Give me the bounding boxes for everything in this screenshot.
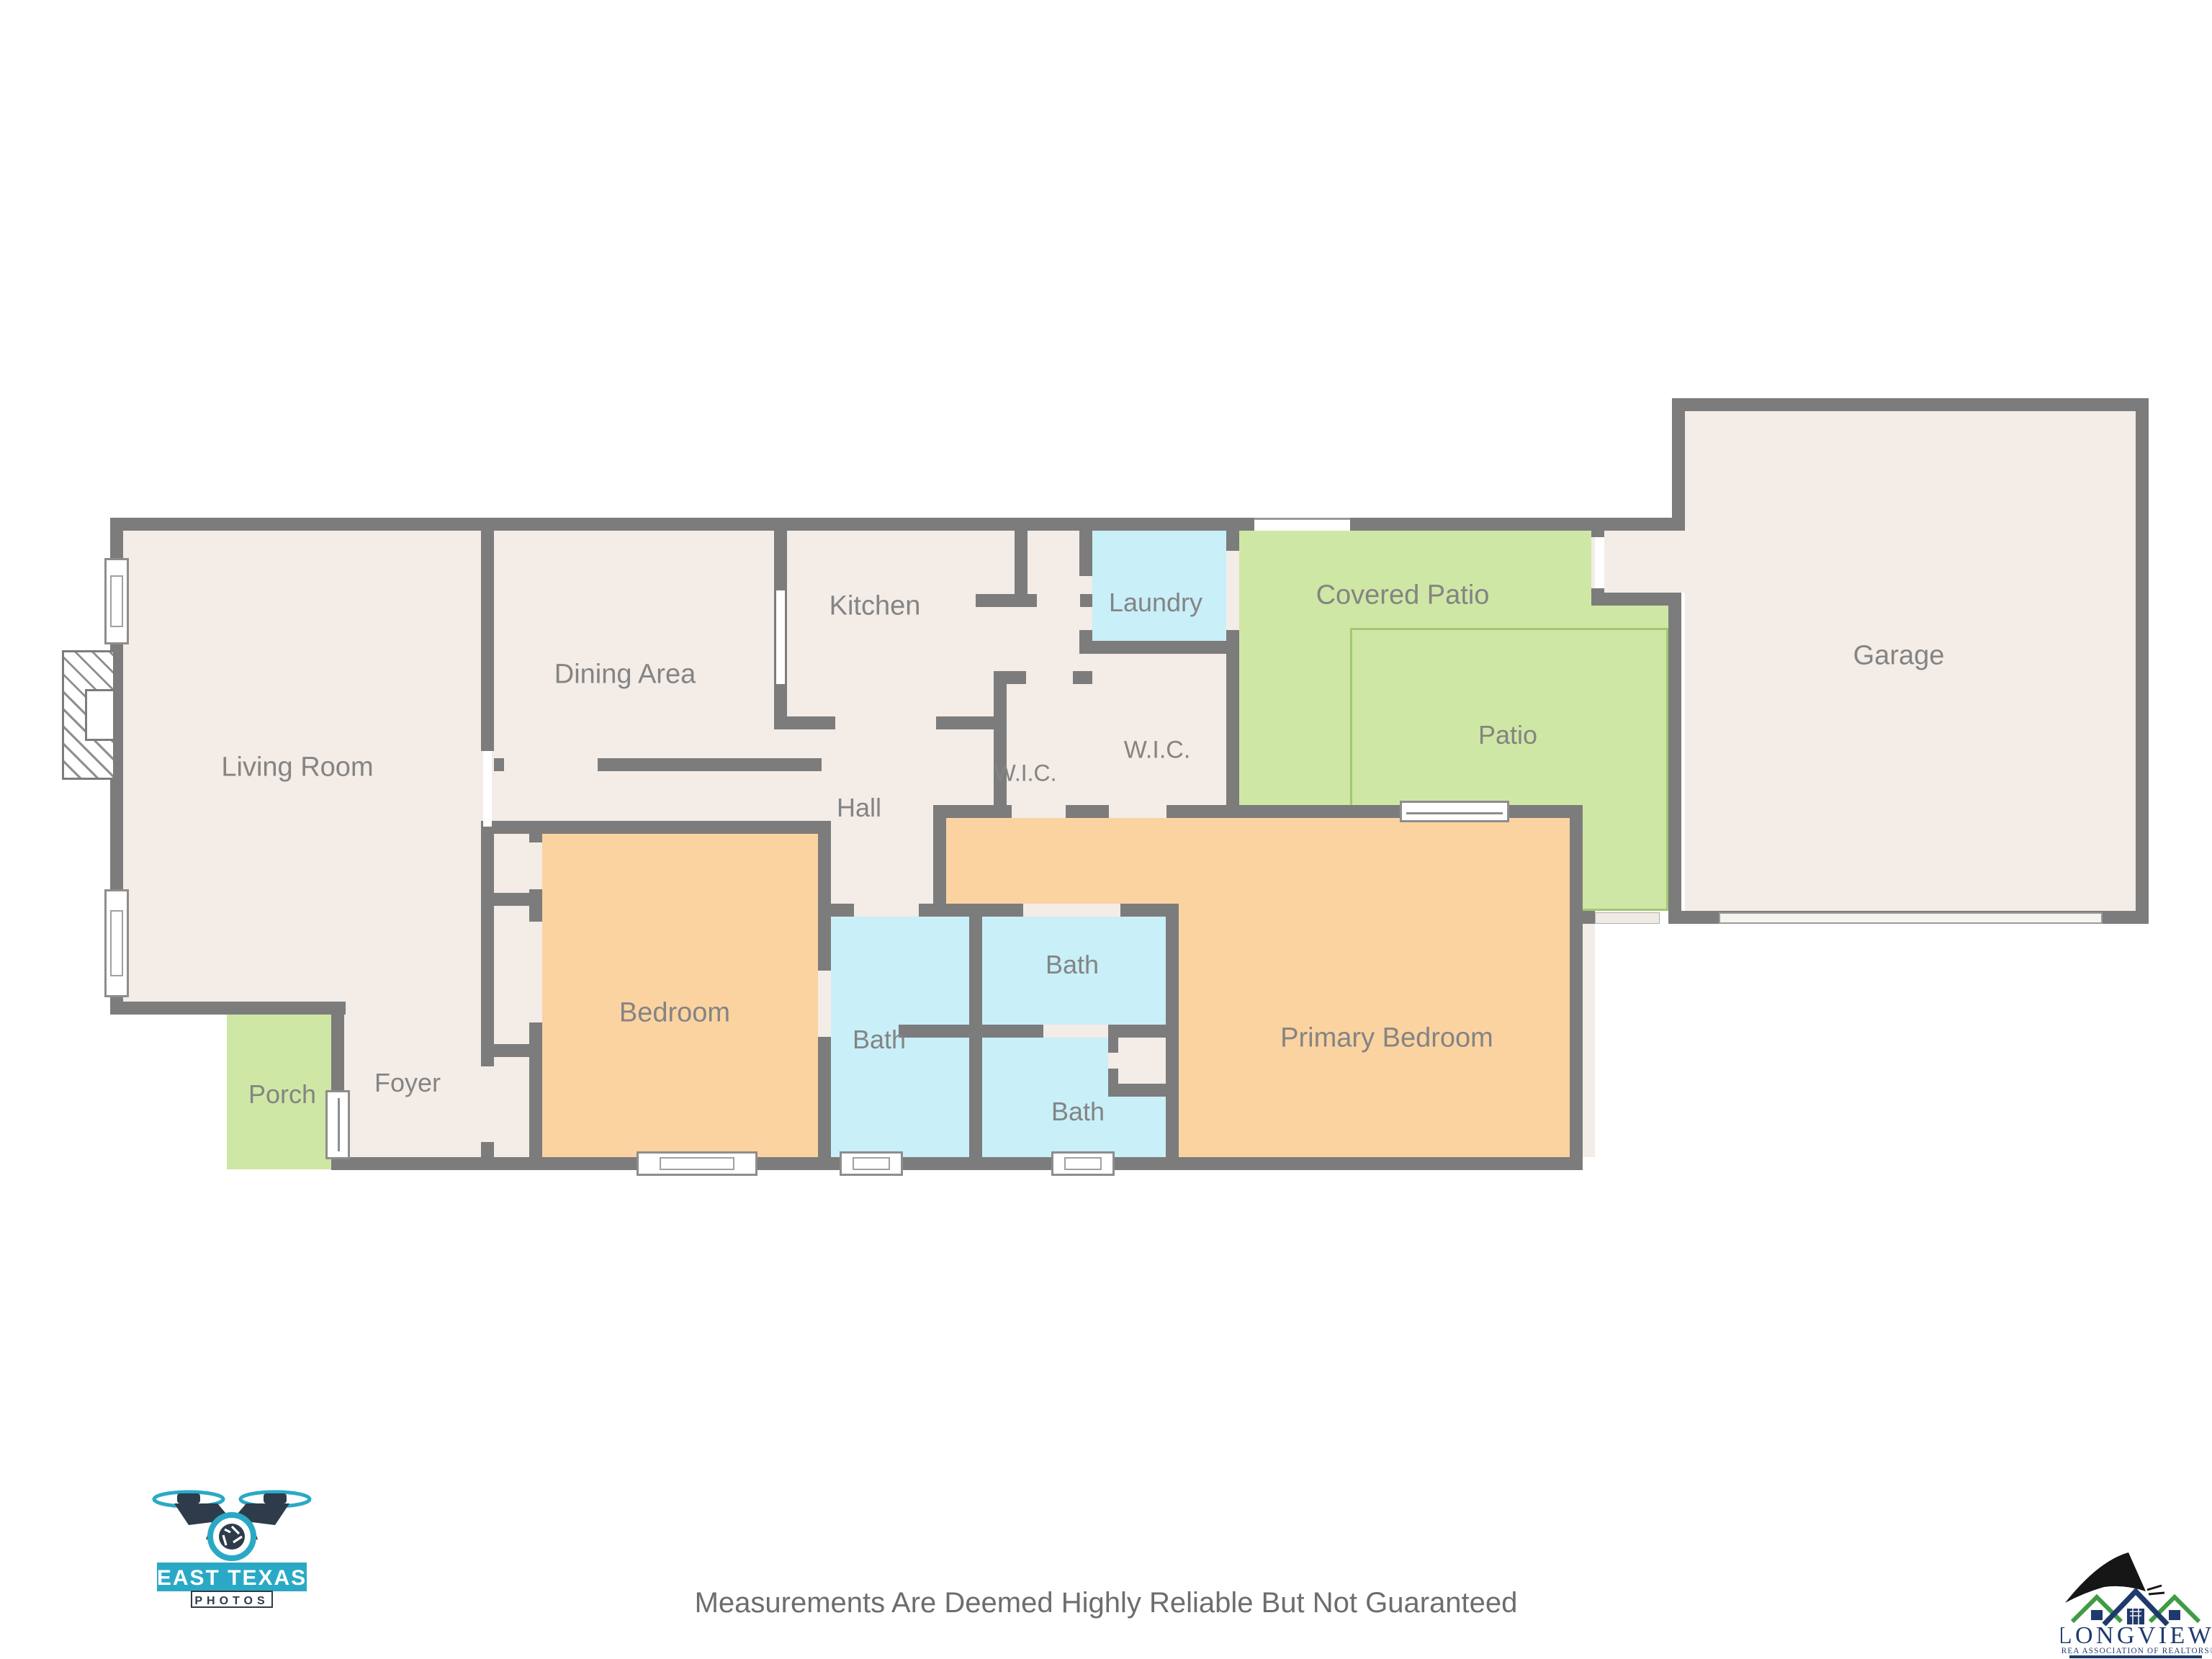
- window: [840, 1151, 903, 1176]
- wall: [1108, 1069, 1118, 1084]
- wall: [529, 889, 542, 922]
- wall: [976, 594, 1037, 607]
- laundry-floor: [1092, 531, 1226, 641]
- association-logo-graphic: LONGVIEW AREA ASSOCIATION OF REALTORS®: [2061, 1547, 2212, 1659]
- room-label-hall: Hall: [837, 793, 881, 823]
- wall: [818, 904, 854, 917]
- wall: [1226, 531, 1239, 551]
- wall: [1073, 671, 1092, 684]
- room-label-primary-bedroom: Primary Bedroom: [1280, 1023, 1493, 1054]
- room-label-foyer: Foyer: [374, 1068, 441, 1098]
- wall: [1166, 904, 1179, 1170]
- room-label-wic-right: W.I.C.: [1124, 737, 1191, 765]
- wall: [1226, 630, 1239, 818]
- wall: [933, 818, 946, 917]
- wall: [1166, 805, 1404, 818]
- wall: [774, 716, 835, 729]
- window: [1051, 1151, 1115, 1176]
- room-label-patio: Patio: [1478, 720, 1537, 750]
- wall: [598, 758, 822, 771]
- window: [104, 889, 129, 997]
- room-label-bath-left: Bath: [853, 1025, 906, 1055]
- wall: [818, 821, 831, 971]
- floor-plan-page: Living Room Dining Area Kitchen Laundry …: [0, 0, 2212, 1659]
- room-label-bath-upper: Bath: [1046, 950, 1099, 980]
- room-label-kitchen: Kitchen: [829, 591, 921, 622]
- association-logo: LONGVIEW AREA ASSOCIATION OF REALTORS®: [2061, 1547, 2212, 1659]
- wall: [1672, 398, 1685, 531]
- primary-bedroom-floor-band: [946, 818, 1570, 904]
- wall: [1591, 588, 1604, 606]
- covered-patio-opening: [1254, 518, 1350, 531]
- room-label-wic-left: W.I.C.: [994, 760, 1056, 787]
- wall: [936, 716, 994, 729]
- wall: [2136, 398, 2149, 924]
- room-label-bedroom: Bedroom: [619, 998, 730, 1029]
- room-label-bath-lower: Bath: [1051, 1097, 1105, 1127]
- bedroom-floor: [542, 834, 818, 1157]
- wall: [1591, 531, 1604, 537]
- wall: [1591, 593, 1681, 606]
- photographer-logo-line2: PHOTOS: [194, 1595, 269, 1607]
- wall: [331, 1157, 1583, 1170]
- garage-hall-floor: [1604, 531, 1685, 593]
- wall: [1570, 911, 1595, 924]
- wall: [1092, 641, 1226, 654]
- wall: [481, 531, 494, 751]
- room-label-laundry: Laundry: [1109, 588, 1202, 618]
- association-logo-subtitle: AREA ASSOCIATION OF REALTORS®: [2061, 1647, 2212, 1655]
- wall: [1108, 1038, 1118, 1053]
- wall: [982, 1025, 1043, 1038]
- wall: [1080, 594, 1092, 607]
- wall: [110, 1002, 346, 1015]
- wall: [494, 758, 504, 771]
- wall: [818, 1037, 831, 1170]
- sliding-door: [1400, 801, 1509, 822]
- wall: [110, 518, 1672, 531]
- wall: [529, 821, 542, 842]
- wall: [1505, 805, 1583, 818]
- pocket-opening: [776, 590, 785, 684]
- wall: [1668, 606, 1681, 911]
- patio-threshold: [1595, 912, 1660, 924]
- room-label-living-room: Living Room: [221, 752, 373, 783]
- wall: [1570, 818, 1583, 1170]
- drone-icon: [154, 1492, 310, 1558]
- drone-logo-graphic: EAST TEXAS PHOTOS: [134, 1482, 350, 1611]
- outside-mask: [123, 1015, 227, 1170]
- wall: [481, 827, 494, 1066]
- wall: [1015, 531, 1028, 594]
- wall: [481, 1142, 494, 1170]
- wall: [1108, 1084, 1179, 1097]
- window: [637, 1151, 757, 1176]
- front-door: [325, 1090, 350, 1159]
- wall: [494, 893, 529, 906]
- room-label-porch: Porch: [248, 1079, 316, 1110]
- window: [104, 558, 129, 644]
- photographer-logo-line1: EAST TEXAS: [157, 1566, 307, 1590]
- wall: [529, 1022, 542, 1170]
- wall: [899, 1025, 969, 1038]
- wall: [494, 1044, 529, 1057]
- rooflines-icon: [2072, 1591, 2199, 1624]
- room-label-dining-area: Dining Area: [554, 660, 696, 691]
- fireplace-firebox: [85, 689, 115, 741]
- room-label-garage: Garage: [1853, 641, 1945, 672]
- wall: [969, 904, 982, 1170]
- wall: [1066, 805, 1109, 818]
- photographer-logo: EAST TEXAS PHOTOS: [134, 1482, 350, 1611]
- wall: [994, 684, 1007, 818]
- wall: [1672, 398, 2149, 411]
- pocket-opening: [483, 751, 492, 827]
- wall: [1079, 630, 1092, 654]
- wall: [1079, 531, 1092, 576]
- room-label-covered-patio: Covered Patio: [1316, 580, 1490, 611]
- association-logo-name: LONGVIEW: [2061, 1622, 2212, 1649]
- wall: [933, 805, 1012, 818]
- garage-door: [1719, 912, 2103, 924]
- wall: [994, 671, 1026, 684]
